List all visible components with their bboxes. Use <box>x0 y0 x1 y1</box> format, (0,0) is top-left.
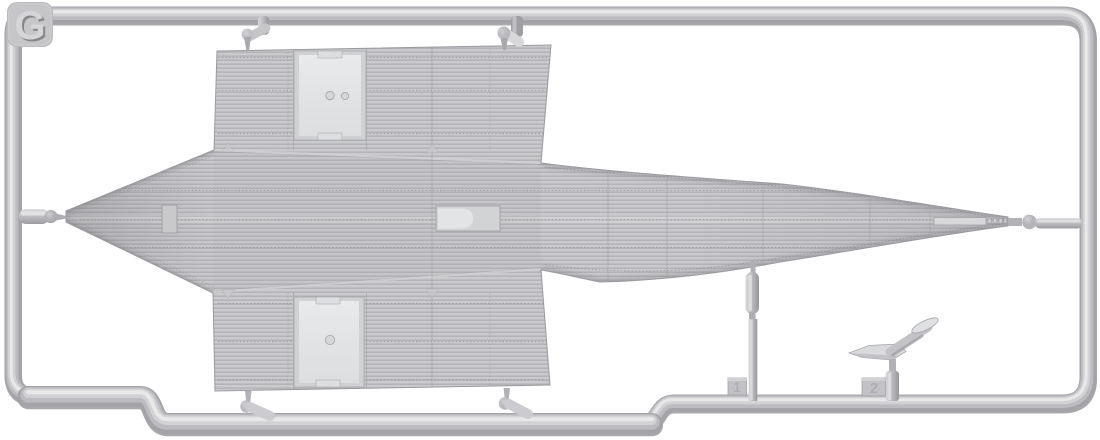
svg-text:2: 2 <box>870 380 878 397</box>
svg-text:1: 1 <box>733 379 741 395</box>
svg-text:G: G <box>14 4 45 48</box>
